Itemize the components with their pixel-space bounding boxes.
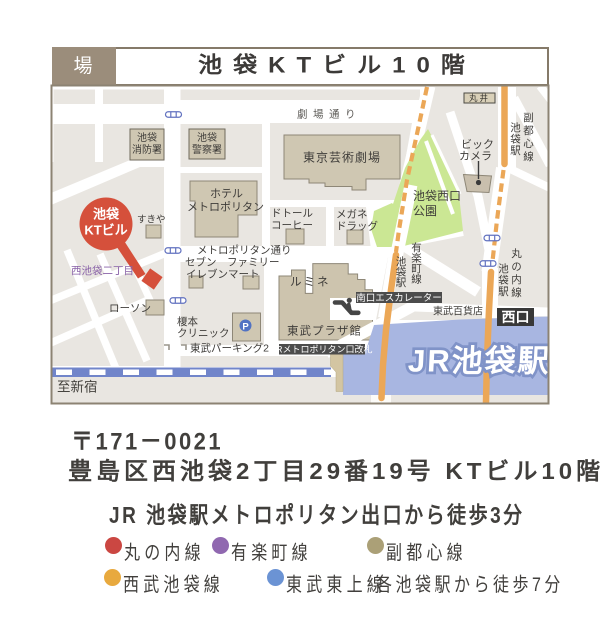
svg-text:イレブン: イレブン xyxy=(186,268,228,281)
svg-text:東京芸術劇場: 東京芸術劇場 xyxy=(303,151,381,165)
svg-text:ビック: ビック xyxy=(461,138,494,151)
svg-text:クリニック: クリニック xyxy=(177,328,230,340)
svg-text:すきや: すきや xyxy=(137,215,166,226)
svg-text:ドラッグ: ドラッグ xyxy=(336,220,378,233)
svg-text:コーヒー: コーヒー xyxy=(271,220,313,232)
svg-text:池袋: 池袋 xyxy=(93,207,120,222)
svg-text:ドトール: ドトール xyxy=(271,208,313,220)
svg-text:池袋駅: 池袋駅 xyxy=(497,262,509,297)
svg-text:P: P xyxy=(242,321,249,332)
svg-text:副都心線: 副都心線 xyxy=(522,112,534,164)
svg-text:メガネ: メガネ xyxy=(336,209,368,221)
svg-text:池袋: 池袋 xyxy=(137,131,157,144)
svg-text:セブン: セブン xyxy=(185,256,217,269)
svg-text:有楽町線: 有楽町線 xyxy=(410,241,422,284)
svg-text:池袋西口: 池袋西口 xyxy=(413,189,461,203)
svg-text:丸井: 丸井 xyxy=(469,93,490,103)
svg-text:東武プラザ館: 東武プラザ館 xyxy=(287,324,362,338)
svg-text:池袋: 池袋 xyxy=(197,131,217,144)
svg-text:ローソン: ローソン xyxy=(109,303,151,315)
svg-text:至新宿: 至新宿 xyxy=(57,379,98,395)
svg-text:JRメトロポリタン口改札: JRメトロポリタン口改札 xyxy=(271,343,372,354)
svg-text:西池袋二丁目: 西池袋二丁目 xyxy=(71,264,134,277)
svg-text:丸の内線: 丸の内線 xyxy=(510,247,522,300)
svg-text:ファミリー: ファミリー xyxy=(227,257,280,269)
svg-text:メトロポリタン: メトロポリタン xyxy=(187,201,264,214)
svg-text:JR池袋駅: JR池袋駅 xyxy=(407,344,551,379)
svg-text:KTビル: KTビル xyxy=(84,223,127,238)
svg-text:西口: 西口 xyxy=(502,309,530,325)
svg-text:東武パーキング2: 東武パーキング2 xyxy=(190,342,269,355)
svg-text:南口エスカレーター: 南口エスカレーター xyxy=(356,292,442,304)
svg-text:カメラ: カメラ xyxy=(459,150,492,163)
svg-text:東武百貨店: 東武百貨店 xyxy=(433,305,483,318)
svg-text:警察署: 警察署 xyxy=(192,143,222,156)
svg-text:榎本: 榎本 xyxy=(177,315,198,328)
svg-text:ルミネ: ルミネ xyxy=(290,276,331,289)
svg-text:消防署: 消防署 xyxy=(132,143,162,156)
svg-text:マート: マート xyxy=(228,269,260,281)
svg-text:劇場通り: 劇場通り xyxy=(297,108,361,121)
svg-text:ホテル: ホテル xyxy=(210,187,243,200)
svg-text:メトロポリタン通り: メトロポリタン通り xyxy=(197,245,292,257)
svg-text:池袋駅: 池袋駅 xyxy=(395,255,407,288)
svg-text:池袋駅: 池袋駅 xyxy=(509,121,521,156)
svg-text:公園: 公園 xyxy=(413,204,437,218)
